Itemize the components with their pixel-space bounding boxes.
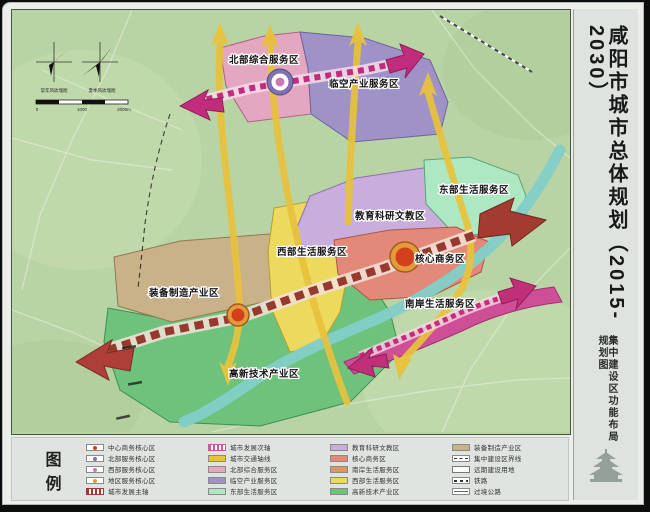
legend-entry: 地区服务核心区: [86, 476, 202, 485]
legend-fill-swatch: [208, 455, 226, 462]
label-hightech-industry: 高新技术产业区: [229, 368, 299, 380]
legend-fill-swatch: [330, 455, 348, 462]
legend-core-dot-swatch: [86, 444, 104, 451]
map-svg: 北部综合服务区 临空产业服务区 东部生活服务区 教育科研文教区 西部生活服务区 …: [12, 10, 570, 432]
map-area: 北部综合服务区 临空产业服务区 东部生活服务区 教育科研文教区 西部生活服务区 …: [11, 9, 571, 435]
label-east-living: 东部生活服务区: [439, 184, 509, 196]
legend-label: 西部服务核心区: [108, 464, 156, 474]
legend-label: 集中建设区界线: [474, 453, 522, 463]
north-core-node: [267, 69, 293, 95]
label-airport-industry: 临空产业服务区: [329, 78, 399, 90]
legend-entry: 装备制造产业区: [452, 443, 568, 452]
legend-outline-swatch: [452, 466, 470, 473]
legend-main-axis-swatch: [86, 488, 104, 495]
photo-bottom-border: [0, 505, 650, 512]
label-west-living: 西部生活服务区: [277, 246, 347, 258]
legend-column-1: 中心商务核心区 北部服务核心区 西部服务核心区 地区服务核心区 城市发展主轴: [86, 443, 202, 496]
legend-road-swatch: [452, 488, 470, 495]
plan-subtitle: 集中建设区功能布局规划图: [596, 335, 616, 449]
legend-entry: 远期建设用地: [452, 465, 568, 474]
label-south-bank-living: 南岸生活服务区: [405, 298, 475, 310]
legend-label: 铁路: [474, 475, 488, 485]
legend-label: 核心商务区: [352, 453, 386, 463]
plan-sheet: 北部综合服务区 临空产业服务区 东部生活服务区 教育科研文教区 西部生活服务区 …: [2, 2, 644, 505]
legend-title: 图 例: [26, 446, 82, 492]
west-core-node: [227, 304, 249, 326]
legend-fill-swatch: [452, 444, 470, 451]
legend-label: 西部生活服务区: [352, 475, 400, 485]
scale-tick-mid: 1000: [77, 107, 88, 112]
label-education-research: 教育科研文教区: [354, 210, 425, 222]
legend-label: 临空产业服务区: [230, 475, 278, 485]
legend-entry: 高新技术产业区: [330, 487, 446, 496]
label-core-business: 核心商务区: [415, 253, 465, 265]
legend-column-3: 教育科研文教区 核心商务区 南岸生活服务区 西部生活服务区 高新技术产业区: [330, 443, 446, 496]
legend-fill-swatch: [330, 477, 348, 484]
label-equipment-manufacturing: 装备制造产业区: [148, 287, 219, 299]
legend-entry: 城市发展主轴: [86, 487, 202, 496]
legend-entry: 西部服务核心区: [86, 465, 202, 474]
legend-fill-swatch: [208, 466, 226, 473]
compass-label-left: 常年风玫瑰图: [41, 87, 68, 94]
legend-title-char: 例: [45, 470, 62, 494]
scale-tick-end: 2000m: [117, 107, 131, 112]
legend-core-dot-swatch: [86, 455, 104, 462]
legend-label: 地区服务核心区: [108, 475, 156, 485]
legend-label: 城市发展主轴: [108, 486, 149, 496]
legend-entry: 中心商务核心区: [86, 443, 202, 452]
legend-entry: 城市发展次轴: [208, 443, 324, 452]
legend-label: 城市交通轴线: [230, 453, 271, 463]
legend-rail-swatch: [452, 477, 470, 484]
legend-fill-swatch: [208, 488, 226, 495]
legend-entry: 临空产业服务区: [208, 476, 324, 485]
legend-entry: 教育科研文教区: [330, 443, 446, 452]
legend-label: 高新技术产业区: [352, 486, 400, 496]
legend-entry: 铁路: [452, 476, 568, 485]
legend-entry: 东部生活服务区: [208, 487, 324, 496]
legend-entry: 西部生活服务区: [330, 476, 446, 485]
legend-fill-swatch: [330, 488, 348, 495]
legend-column-2: 城市发展次轴 城市交通轴线 北部综合服务区 临空产业服务区 东部生活服务区: [208, 443, 324, 496]
legend-core-dot-swatch: [86, 477, 104, 484]
legend-fill-swatch: [330, 444, 348, 451]
legend-boundary-swatch: [452, 455, 470, 462]
title-sidebar: 咸阳市城市总体规划（2015-2030） 集中建设区功能布局规划图: [573, 9, 638, 500]
legend-title-char: 图: [45, 446, 62, 470]
legend-fill-swatch: [330, 466, 348, 473]
legend-label: 北部服务核心区: [108, 453, 156, 463]
legend-entry: 集中建设区界线: [452, 454, 568, 463]
legend-fill-swatch: [208, 477, 226, 484]
legend-grid: 中心商务核心区 北部服务核心区 西部服务核心区 地区服务核心区 城市发展主轴: [86, 443, 568, 496]
legend-core-dot-swatch: [86, 466, 104, 473]
legend-entry: 北部综合服务区: [208, 465, 324, 474]
label-north-comprehensive: 北部综合服务区: [229, 54, 299, 66]
photo-right-border: [646, 0, 650, 512]
legend-label: 装备制造产业区: [474, 442, 522, 452]
legend-label: 过境公路: [474, 486, 501, 496]
legend-label: 东部生活服务区: [230, 486, 278, 496]
legend-label: 教育科研文教区: [352, 442, 400, 452]
legend-label: 南岸生活服务区: [352, 464, 400, 474]
plan-title: 咸阳市城市总体规划（2015-2030）: [586, 25, 626, 321]
legend-label: 远期建设用地: [474, 464, 515, 474]
legend-label: 北部综合服务区: [230, 464, 278, 474]
pagoda-icon: [585, 449, 627, 490]
legend-entry: 过境公路: [452, 487, 568, 496]
legend-column-4: 装备制造产业区 集中建设区界线 远期建设用地 铁路 过境公路: [452, 443, 568, 496]
legend-entry: 核心商务区: [330, 454, 446, 463]
legend-entry: 北部服务核心区: [86, 454, 202, 463]
legend-label: 城市发展次轴: [230, 442, 271, 452]
compass-label-right: 夏季风玫瑰图: [89, 87, 116, 94]
legend-panel: 图 例 中心商务核心区 北部服务核心区 西部服务核心区 地: [11, 437, 569, 501]
legend-entry: 南岸生活服务区: [330, 465, 446, 474]
legend-entry: 城市交通轴线: [208, 454, 324, 463]
legend-sub-axis-swatch: [208, 444, 226, 451]
legend-label: 中心商务核心区: [108, 442, 156, 452]
